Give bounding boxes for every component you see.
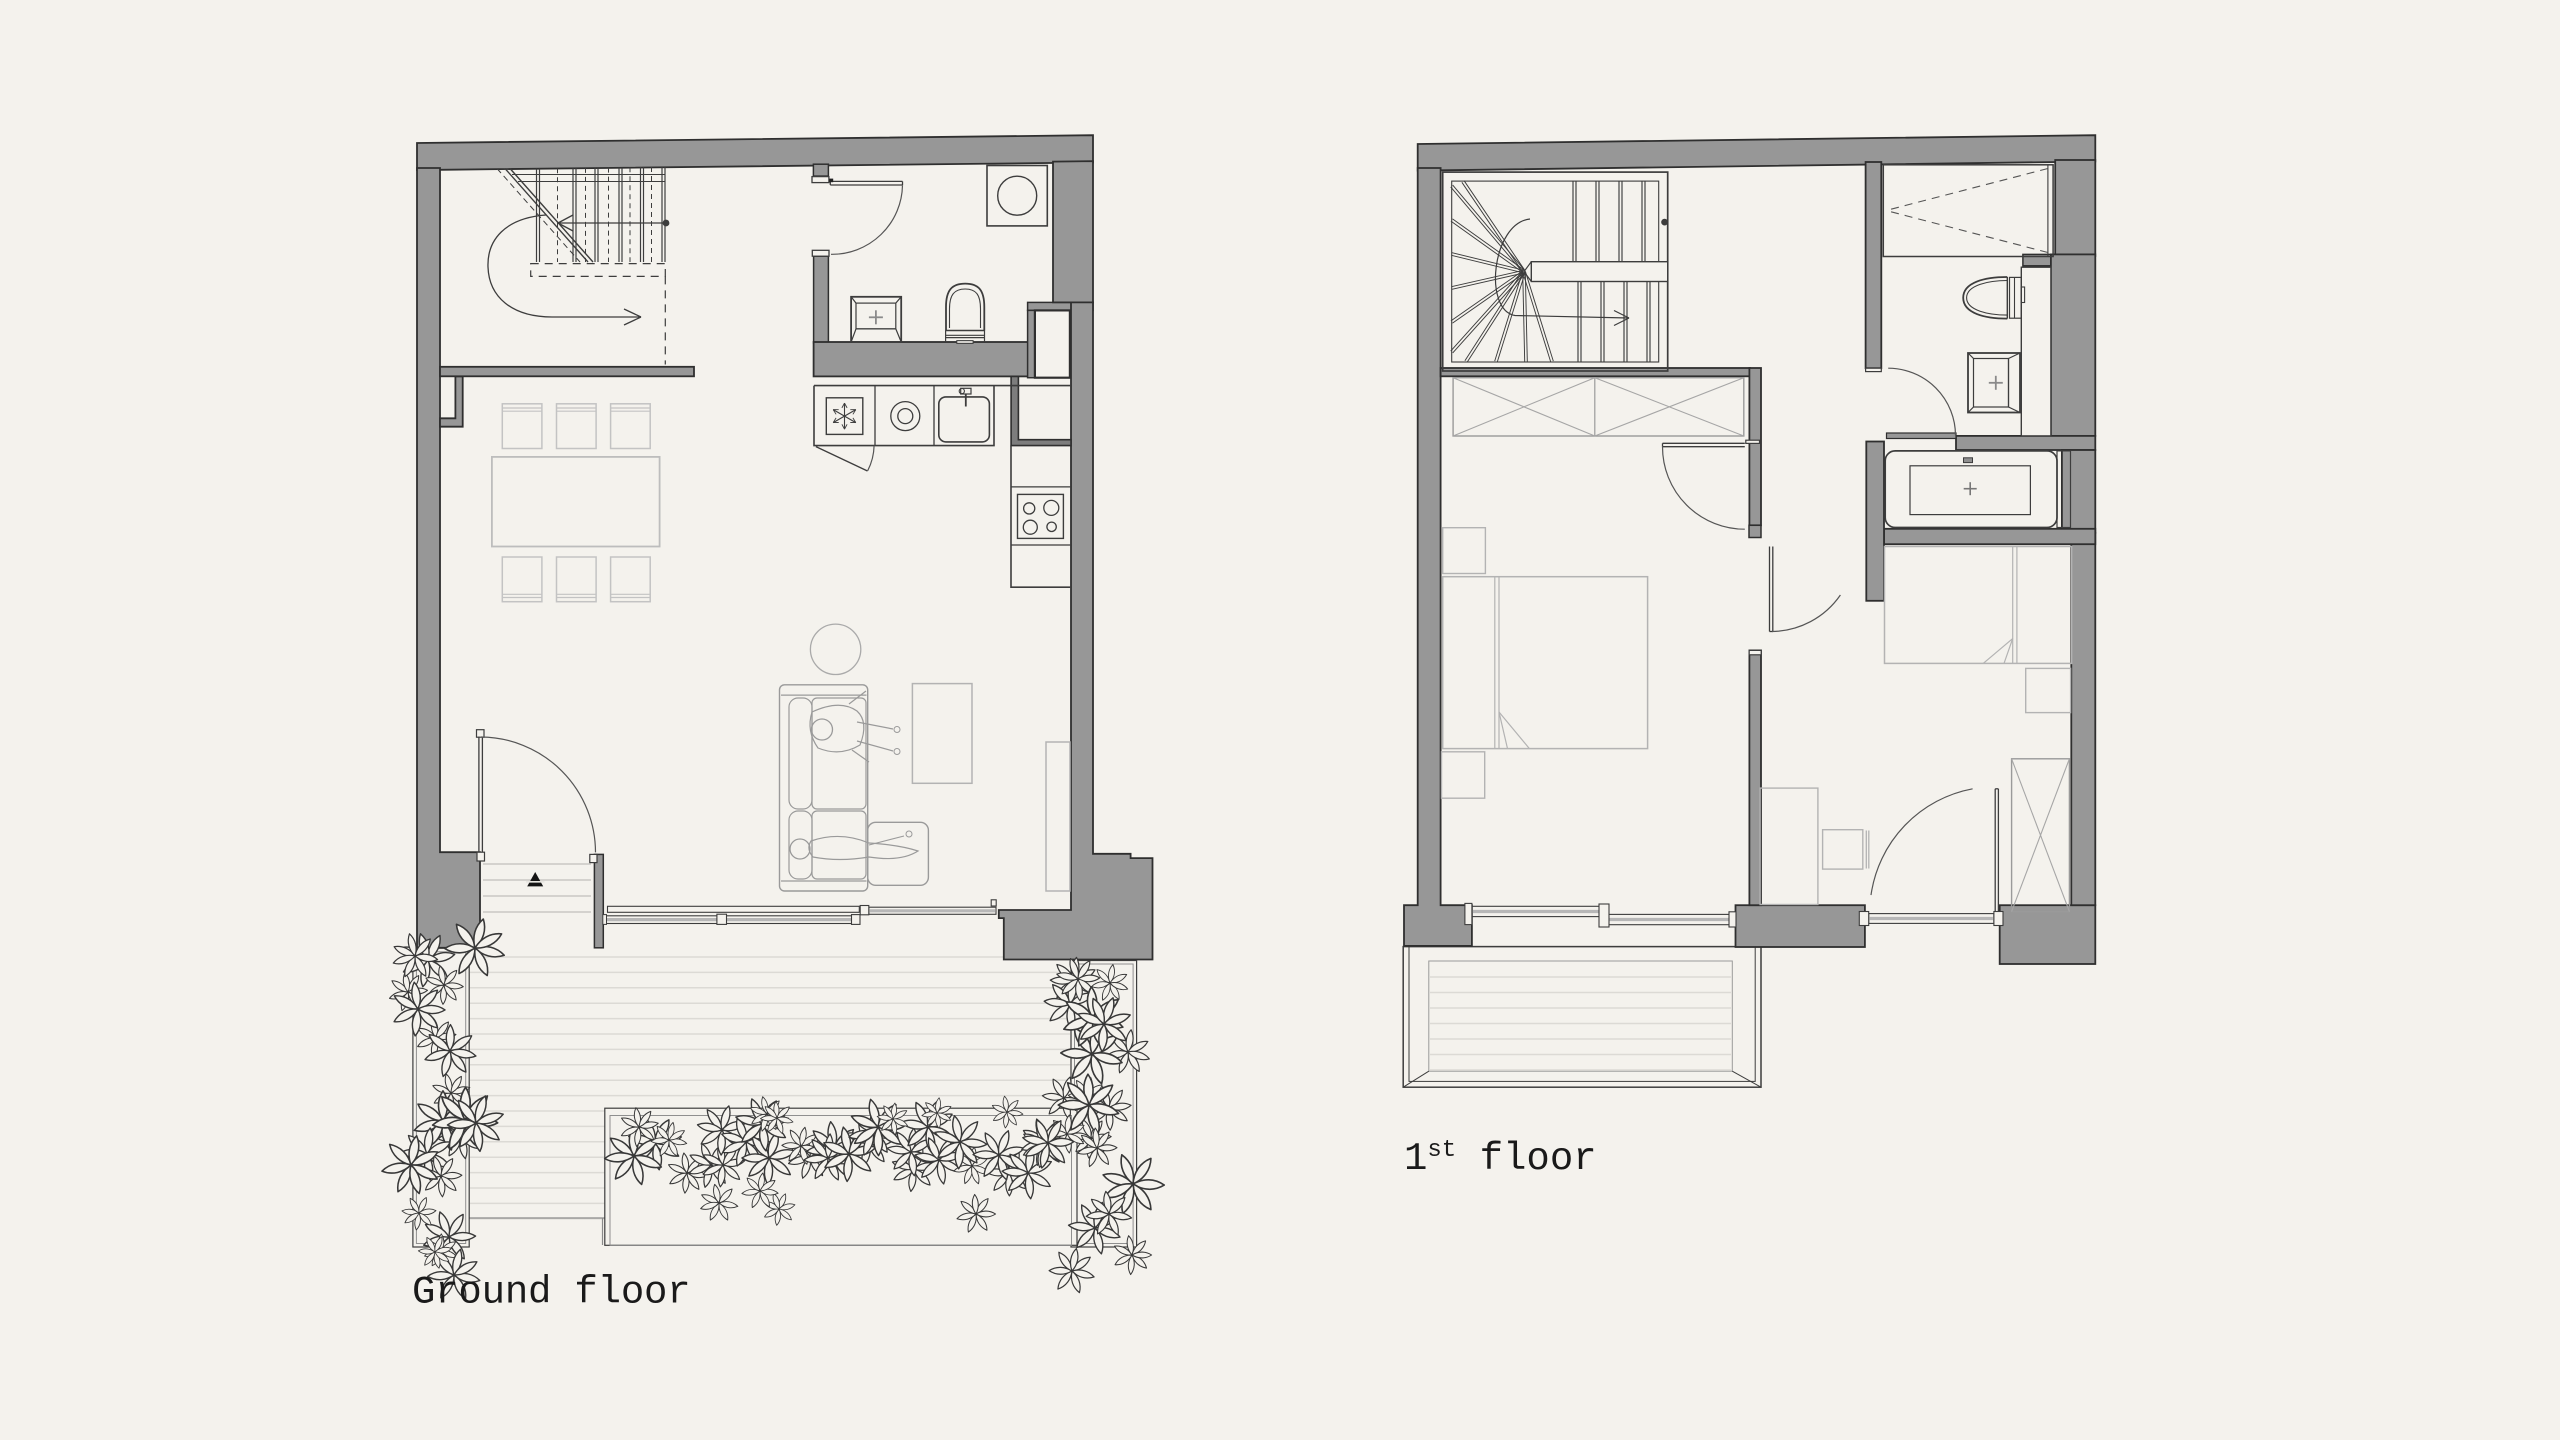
svg-text:Ground floor: Ground floor bbox=[412, 1271, 690, 1315]
